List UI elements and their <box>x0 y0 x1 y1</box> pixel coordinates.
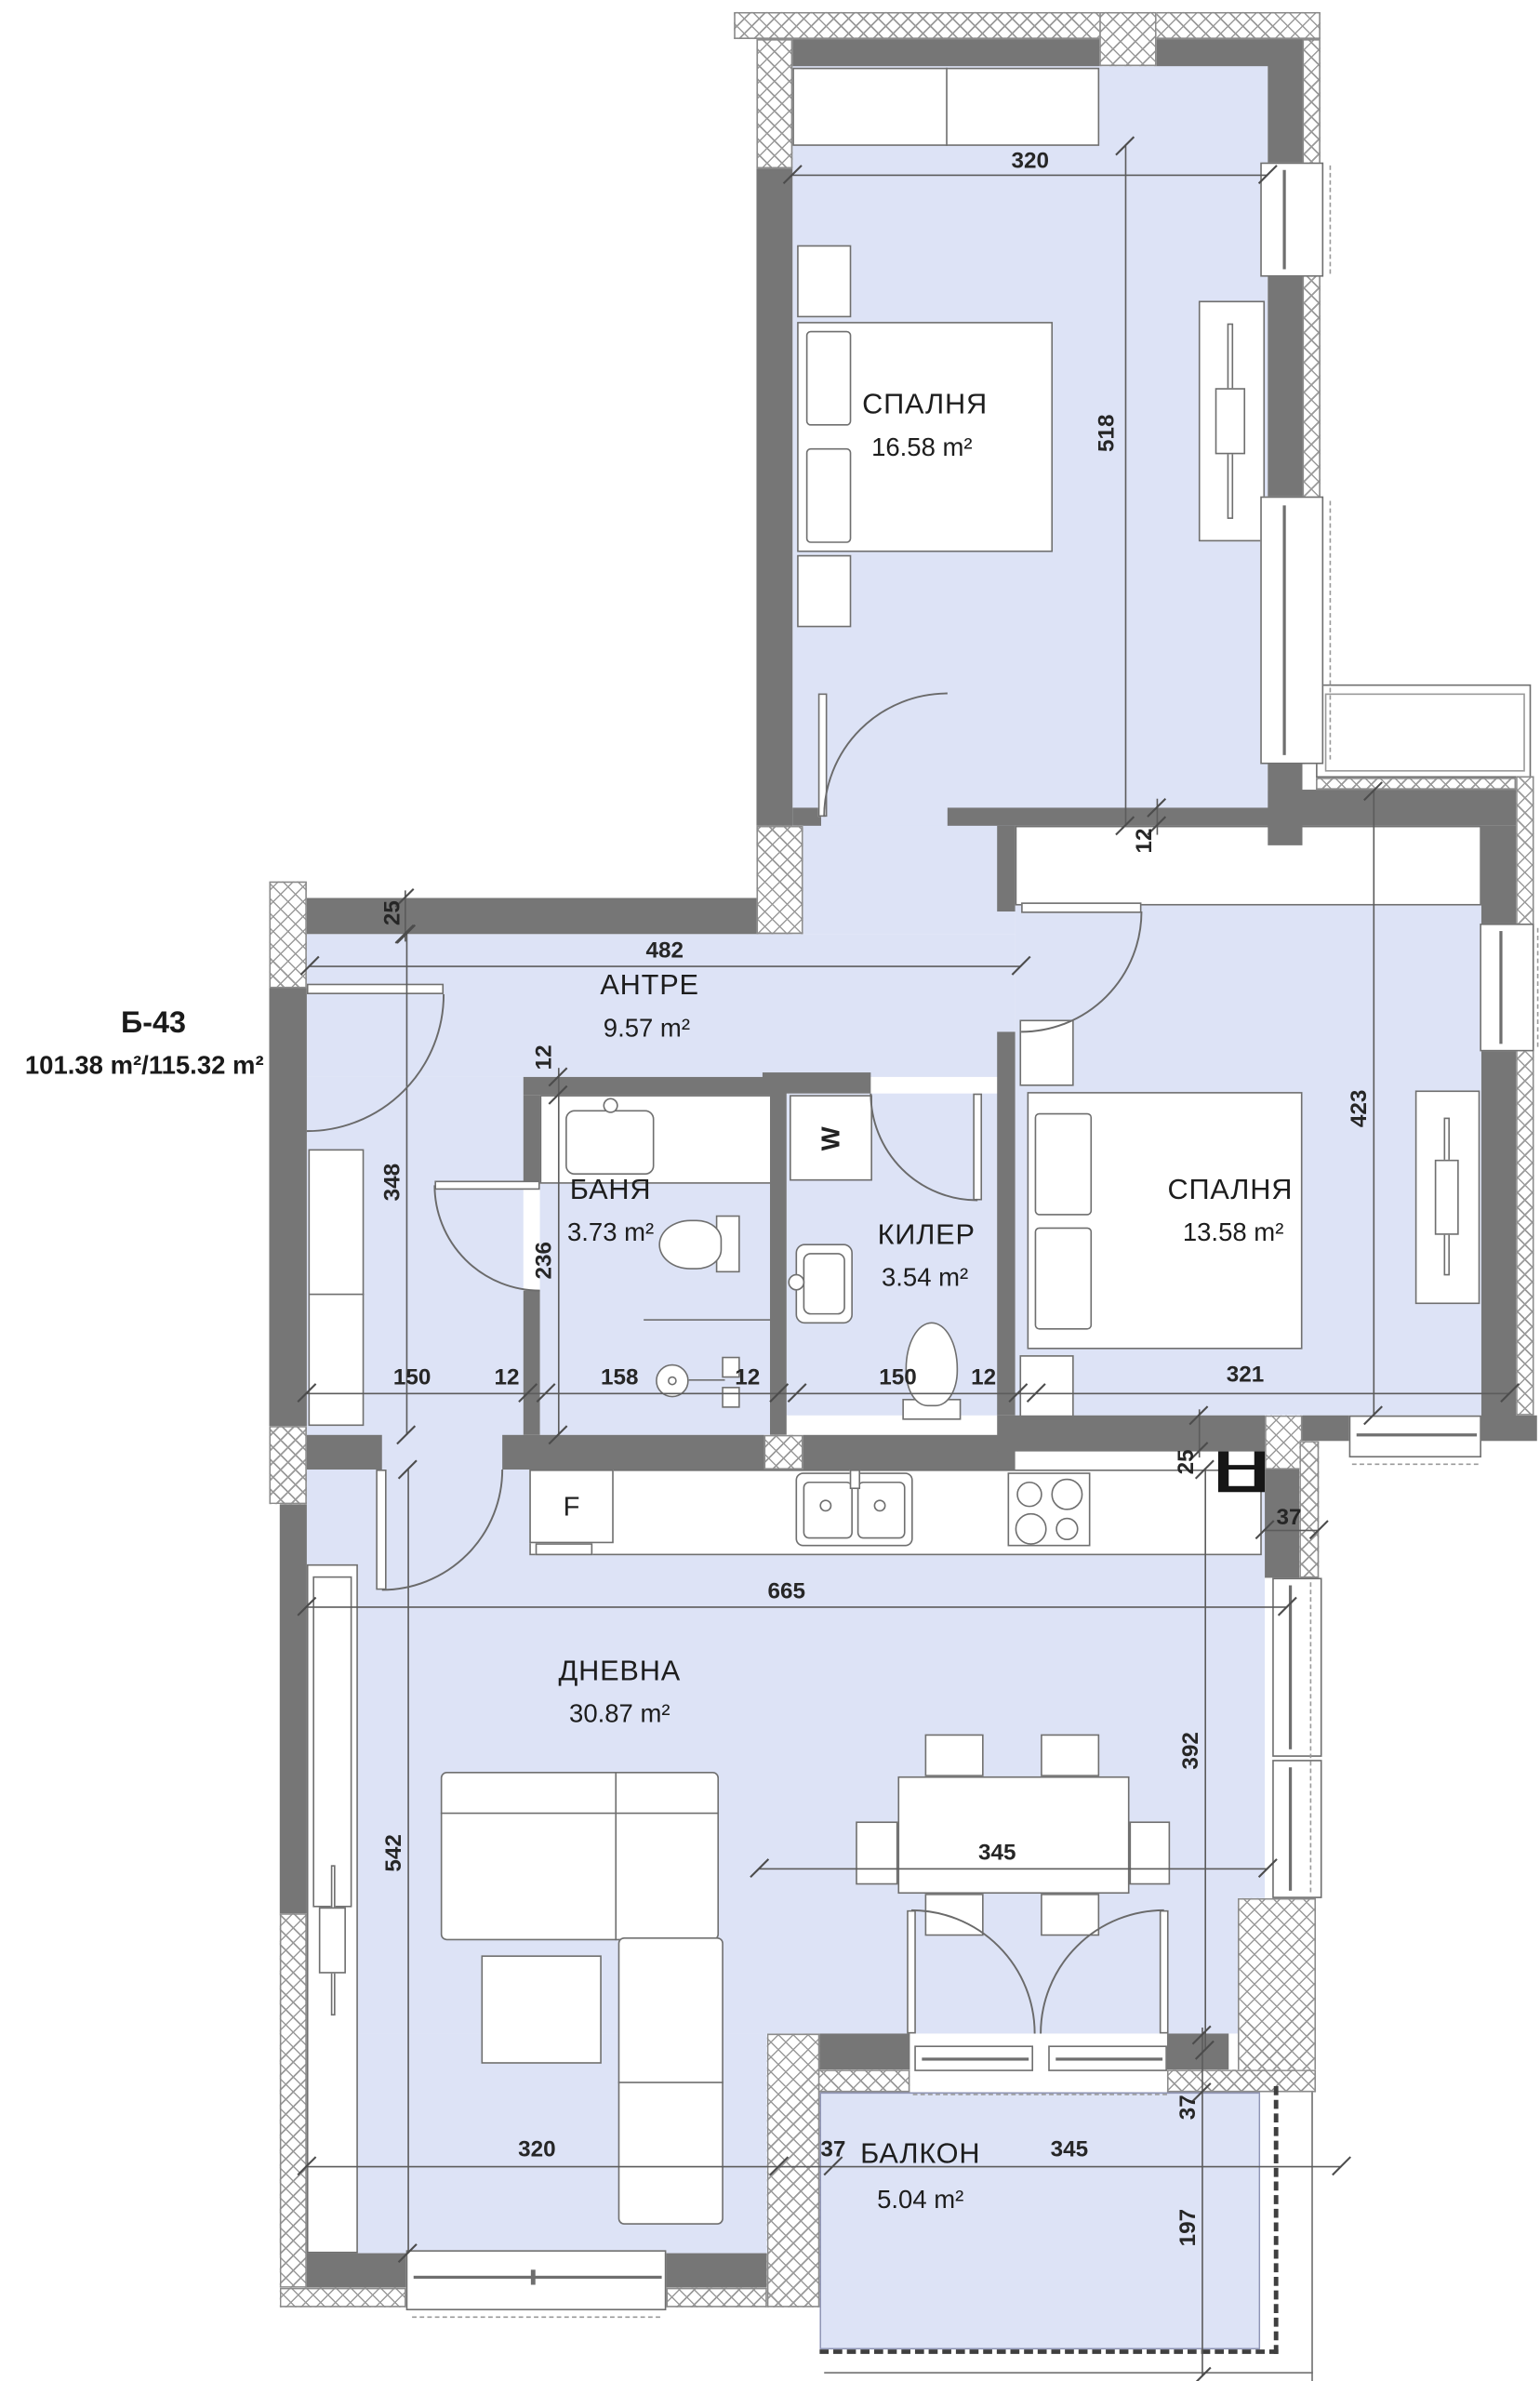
dim-158-bath: 158 <box>601 1365 638 1390</box>
bedroom2-window-bottom <box>1349 1416 1481 1457</box>
bedroom2-door-leaf <box>1021 902 1141 912</box>
balcony-door-leaf-left <box>907 1910 916 2034</box>
dim-482: 482 <box>646 938 684 963</box>
pier-kitchen <box>764 1435 803 1470</box>
bedroom1-nightstand-top <box>797 246 851 318</box>
bedroom1-window-2-glass <box>1282 505 1285 754</box>
dim-25-hall: 25 <box>379 900 405 925</box>
bedroom1-pillow-2 <box>806 448 852 543</box>
balcony-outer-edge-right <box>1311 2093 1313 2381</box>
bedroom1-window-2-dash <box>1330 501 1332 760</box>
fridge: F <box>529 1470 614 1543</box>
unit-areas: 101.38 m²/115.32 m² <box>25 1051 264 1081</box>
dimline-345-dining <box>760 1869 1268 1870</box>
wall-bathroom-left-upper <box>524 1095 540 1185</box>
living-window-2 <box>1272 1760 1321 1898</box>
balcony-door-sill-right <box>1048 2045 1167 2070</box>
stove-burner-2 <box>1051 1479 1082 1510</box>
dim-518: 518 <box>1095 415 1120 452</box>
stove-burner-3 <box>1016 1513 1047 1545</box>
wall-living-bottom-left <box>305 2254 405 2288</box>
dim-345-dining: 345 <box>978 1841 1016 1866</box>
dim-542-living: 542 <box>381 1834 406 1871</box>
storage-sink-faucet <box>788 1274 804 1291</box>
adjacent-bay-inner <box>1325 694 1525 772</box>
kitchen-sink-drain-left <box>819 1499 831 1511</box>
sofa-seam-2 <box>618 2082 724 2083</box>
shower-arm <box>689 1379 725 1381</box>
dim-320-bottom: 320 <box>518 2136 555 2162</box>
dining-table <box>897 1776 1129 1894</box>
dining-chair-right <box>1130 1821 1171 1884</box>
bedroom1-window-1-dash <box>1330 166 1332 273</box>
balcony-area: 5.04 m² <box>877 2186 963 2215</box>
wall-bedroom2-top-right <box>1302 790 1516 826</box>
dim-348: 348 <box>379 1164 405 1201</box>
wall-bedroom1-top <box>760 39 1303 66</box>
balcony-door-sill-left-line <box>922 2057 1029 2060</box>
dimline-320-top <box>792 175 1268 177</box>
wall-balcony-left <box>767 2033 820 2307</box>
wall-kitchen-left <box>307 1435 382 1470</box>
balcony-railing-right <box>1274 2086 1279 2354</box>
dim-12-bedroom2: 12 <box>1132 829 1157 854</box>
fridge-label: F <box>564 1491 580 1523</box>
bedroom2-window-bottom-glass <box>1357 1433 1477 1436</box>
floorplan-page: W F <box>0 0 1540 2381</box>
dimline-665 <box>307 1606 1287 1608</box>
bedroom1-pillow-1 <box>806 331 852 426</box>
dimline-542 <box>407 1470 409 2254</box>
bathroom-name: БАНЯ <box>570 1175 652 1208</box>
wall-bathroom-storage <box>770 1077 787 1435</box>
dim-150-storage: 150 <box>879 1365 916 1390</box>
insulation-bottom-left <box>280 2288 406 2308</box>
living-window-south <box>406 2250 667 2310</box>
bathroom-sink <box>565 1110 654 1175</box>
bedroom2-nightstand-bottom <box>1019 1355 1073 1421</box>
insulation-bedroom2-right <box>1516 776 1533 1415</box>
dimline-bottom-chain <box>307 2166 1342 2168</box>
bedroom2-wardrobe <box>1016 826 1481 906</box>
balcony-door-sill-left <box>914 2045 1033 2070</box>
bedroom2-window-bottom-dash <box>1352 1464 1479 1466</box>
wall-bedroom2-right <box>1481 826 1516 1437</box>
pier-entry-bottom <box>269 1426 306 1504</box>
unit-id: Б-43 <box>121 1007 186 1042</box>
wall-balcony-top-right <box>1167 2033 1228 2069</box>
dim-12-c: 12 <box>971 1365 996 1390</box>
shower-screen <box>644 1319 773 1321</box>
wall-kitchen <box>502 1435 1015 1470</box>
balcony-door-dash <box>913 2094 1167 2095</box>
wall-bedroom2-corner <box>1481 1416 1537 1441</box>
floorplan-drawing: W F <box>0 0 1540 2381</box>
bedroom1-window-1-glass <box>1282 170 1285 270</box>
wall-storage-top <box>763 1072 870 1094</box>
washing-machine-label: W <box>816 1125 845 1150</box>
dim-345-balcony: 345 <box>1051 2136 1088 2162</box>
kitchen-sink-drain-right <box>874 1499 886 1511</box>
hall-name: АНТРЕ <box>600 970 699 1004</box>
dimline-348 <box>406 934 408 1435</box>
storage-area: 3.54 m² <box>882 1263 968 1293</box>
bathroom-toilet-bowl <box>658 1220 722 1270</box>
dim-423: 423 <box>1347 1090 1372 1127</box>
bathroom-door-leaf <box>434 1181 539 1190</box>
living-window-south-mullion <box>531 2269 536 2284</box>
wall-bedroom2-bottom-right <box>1302 1416 1348 1441</box>
balcony-railing-bottom <box>819 2349 1278 2354</box>
sofa-seam-1 <box>615 1772 617 1940</box>
pier-bedroom2-bottom <box>1265 1416 1302 1470</box>
dim-236: 236 <box>532 1242 557 1279</box>
dimline-37-197 <box>1201 2028 1203 2376</box>
pier-bedroom1-topleft <box>756 39 792 168</box>
dining-chair-left <box>856 1821 897 1884</box>
bedroom2-window-right-dash <box>1537 928 1539 1047</box>
balcony-name: БАЛКОН <box>860 2139 980 2173</box>
stove-burner-1 <box>1016 1482 1042 1507</box>
dim-37-right: 37 <box>1276 1505 1301 1530</box>
pier-top-right <box>1099 12 1156 66</box>
shower-drain-center <box>668 1377 677 1386</box>
dining-chair-bottom-1 <box>925 1894 984 1935</box>
dimline-423 <box>1374 791 1375 1416</box>
bathroom-area: 3.73 m² <box>567 1218 654 1248</box>
hall-closet <box>309 1150 365 1427</box>
dim-12-b: 12 <box>735 1365 760 1390</box>
wall-bathroom-left-lower <box>524 1291 540 1435</box>
insulation-top-band <box>734 12 1321 39</box>
living-name: ДНЕВНА <box>559 1656 682 1690</box>
dim-37-balcony-left: 37 <box>820 2136 845 2162</box>
dim-37-balcony-right: 37 <box>1175 2095 1201 2120</box>
storage-sink-basin <box>803 1253 845 1314</box>
wall-west-entry <box>269 989 306 1427</box>
pier-hall-junction <box>756 826 803 934</box>
fridge-front <box>536 1543 592 1555</box>
dim-25-right: 25 <box>1174 1449 1199 1474</box>
bedroom1-name: СПАЛНЯ <box>862 390 988 423</box>
dimline-392 <box>1204 1470 1206 2050</box>
pier-entry-top <box>269 882 306 989</box>
insulation-balcony-right-band <box>1167 2069 1316 2092</box>
bedroom2-window-right <box>1480 924 1533 1051</box>
sofa-back-line <box>441 1813 719 1815</box>
dim-392-living: 392 <box>1178 1732 1203 1769</box>
sofa-top-section <box>441 1772 719 1940</box>
pier-living-west <box>280 1913 307 2288</box>
dim-12-bath: 12 <box>532 1044 557 1070</box>
living-area: 30.87 m² <box>569 1699 670 1729</box>
bedroom1-window-1 <box>1260 163 1323 277</box>
bedroom2-window-right-glass <box>1499 931 1502 1044</box>
storage-name: КИЛЕР <box>878 1220 976 1254</box>
bedroom2-nightstand-top <box>1019 1019 1073 1085</box>
dining-chair-top-1 <box>925 1735 984 1776</box>
dimline-518 <box>1125 146 1127 826</box>
entry-door-leaf <box>307 984 444 994</box>
hall-floor-upper <box>792 826 1015 934</box>
insulation-bottom-right <box>666 2288 766 2308</box>
dim-150-corridor: 150 <box>393 1365 431 1390</box>
wall-bathroom-top <box>524 1077 773 1095</box>
balcony-door-sill-right-line <box>1055 2057 1162 2060</box>
hall-area: 9.57 m² <box>604 1014 690 1044</box>
dining-chair-bottom-2 <box>1041 1894 1099 1935</box>
dim-321-bedroom2: 321 <box>1227 1362 1264 1387</box>
insulation-bedroom2-top <box>1316 778 1516 790</box>
kitchen-faucet <box>850 1470 860 1489</box>
vent-shaft-cell-2 <box>1228 1470 1254 1486</box>
stove-burner-4 <box>1055 1518 1078 1540</box>
living-window-south-dash <box>412 2316 660 2318</box>
bedroom2-pillow-1 <box>1035 1113 1092 1216</box>
wall-bedroom2-bottom <box>997 1416 1265 1452</box>
bedroom1-radiator-panel <box>1215 388 1245 454</box>
dimline-482 <box>310 965 1021 967</box>
bedroom1-wardrobe-divider <box>946 68 948 146</box>
bedroom1-area: 16.58 m² <box>871 433 973 463</box>
living-window-1-glass <box>1289 1586 1292 1749</box>
dim-197-balcony: 197 <box>1175 2209 1201 2246</box>
bathroom-faucet <box>603 1098 617 1113</box>
wall-bedroom1-bottom-left <box>792 807 821 825</box>
bedroom2-pillow-2 <box>1035 1228 1092 1330</box>
dimline-room-chain <box>307 1393 1510 1395</box>
bedroom1-nightstand-bottom <box>797 555 851 628</box>
dim-320-top: 320 <box>1012 148 1049 173</box>
pier-living-balcony <box>1238 1898 1316 2073</box>
wall-storage-bedroom2-lower <box>997 1031 1015 1415</box>
hall-living-opening <box>382 1435 502 1470</box>
coffee-table <box>482 1955 602 2063</box>
living-left-window-frame <box>312 1576 352 1908</box>
storage-door-leaf <box>973 1094 982 1201</box>
dim-12-a: 12 <box>495 1365 520 1390</box>
living-door-leaf <box>376 1470 386 1590</box>
hall-closet-divider <box>309 1294 365 1296</box>
living-window-1 <box>1272 1577 1321 1756</box>
bedroom2-name: СПАЛНЯ <box>1167 1175 1293 1208</box>
insulation-living-right <box>1299 1441 1319 1577</box>
wall-living-bottom-right <box>666 2254 766 2288</box>
living-radiator-panel <box>319 1908 346 1974</box>
balcony-door-leaf-right <box>1160 1910 1169 2034</box>
balcony-outer-edge-bottom <box>824 2372 1313 2374</box>
dimline-12-236 <box>558 1068 560 1435</box>
living-window-2-glass <box>1289 1767 1292 1891</box>
bedroom2-area: 13.58 m² <box>1183 1218 1284 1248</box>
living-window-south-glass <box>414 2276 662 2279</box>
bedroom1-window-2 <box>1260 497 1323 765</box>
dining-chair-top-2 <box>1041 1735 1099 1776</box>
dim-665-living: 665 <box>768 1578 805 1603</box>
washing-machine: W <box>790 1095 872 1180</box>
bedroom1-door-leaf <box>818 694 828 818</box>
bedroom2-radiator-panel <box>1435 1160 1459 1235</box>
living-windows-dash <box>1310 1582 1312 1892</box>
wall-storage-bedroom2-upper <box>997 826 1015 911</box>
